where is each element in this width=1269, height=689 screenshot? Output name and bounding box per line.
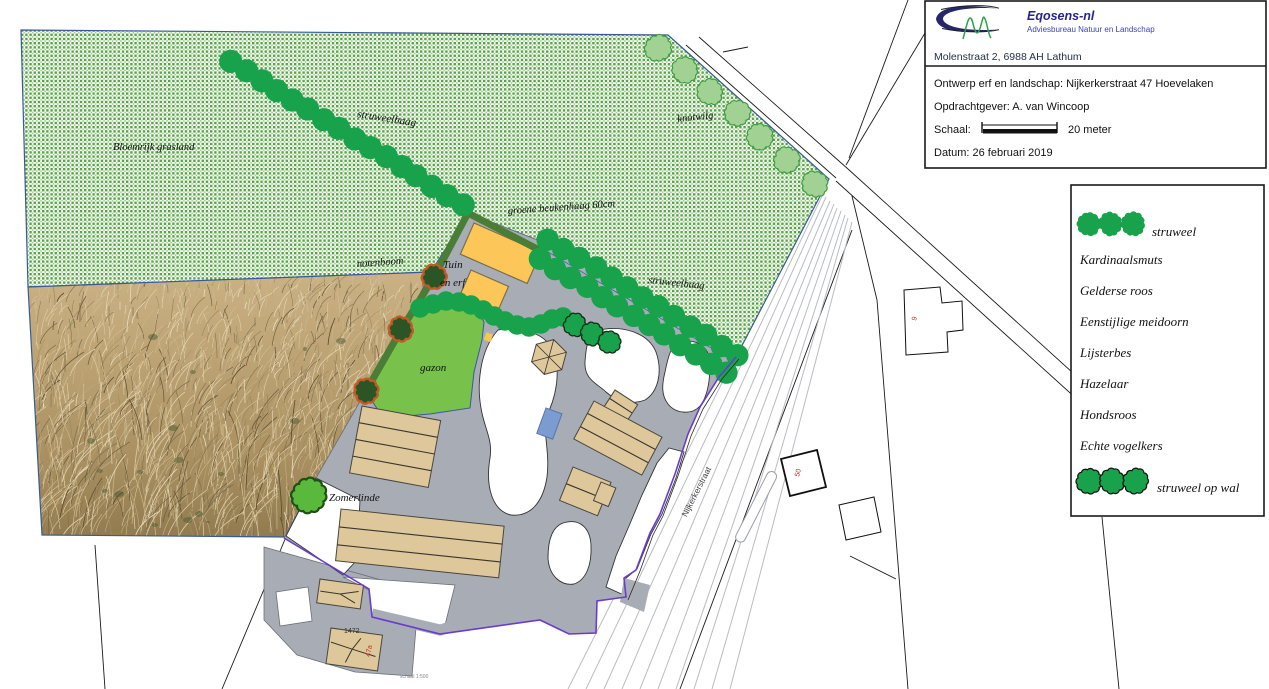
svg-text:Echte vogelkers: Echte vogelkers xyxy=(1079,438,1163,453)
svg-text:Hondsroos: Hondsroos xyxy=(1079,407,1137,422)
svg-text:Ontwerp erf en landschap: Nijk: Ontwerp erf en landschap: Nijkerkerstraa… xyxy=(934,78,1213,90)
svg-text:1472: 1472 xyxy=(344,628,360,635)
svg-text:20 meter: 20 meter xyxy=(1068,124,1112,136)
svg-text:Gelderse roos: Gelderse roos xyxy=(1080,283,1153,298)
svg-text:gazon: gazon xyxy=(420,362,447,374)
svg-text:struweel: struweel xyxy=(1152,224,1196,239)
svg-text:Zomerlinde: Zomerlinde xyxy=(329,492,380,504)
svg-text:Eqosens-nl: Eqosens-nl xyxy=(1027,9,1095,23)
svg-text:schaal 1:500: schaal 1:500 xyxy=(400,674,429,680)
svg-text:Adviesbureau Natuur en Landsch: Adviesbureau Natuur en Landschap xyxy=(1027,25,1155,34)
svg-text:Lijsterbes: Lijsterbes xyxy=(1079,345,1131,360)
svg-text:Kardinaalsmuts: Kardinaalsmuts xyxy=(1079,252,1163,267)
svg-text:Hazelaar: Hazelaar xyxy=(1079,376,1129,391)
svg-text:Tuin: Tuin xyxy=(443,259,463,271)
svg-text:en erf: en erf xyxy=(440,277,467,289)
svg-text:Schaal:: Schaal: xyxy=(934,124,971,136)
svg-text:Bloemrijk grasland: Bloemrijk grasland xyxy=(113,142,195,153)
svg-text:Eenstijlige meidoorn: Eenstijlige meidoorn xyxy=(1079,314,1189,329)
svg-text:Molenstraat 2, 6988 AH Lathum: Molenstraat 2, 6988 AH Lathum xyxy=(934,51,1082,63)
svg-text:Opdrachtgever: A. van Wincoop: Opdrachtgever: A. van Wincoop xyxy=(934,101,1089,113)
svg-text:struweel op wal: struweel op wal xyxy=(1157,480,1240,495)
svg-text:Datum: 26 februari 2019: Datum: 26 februari 2019 xyxy=(934,147,1053,159)
